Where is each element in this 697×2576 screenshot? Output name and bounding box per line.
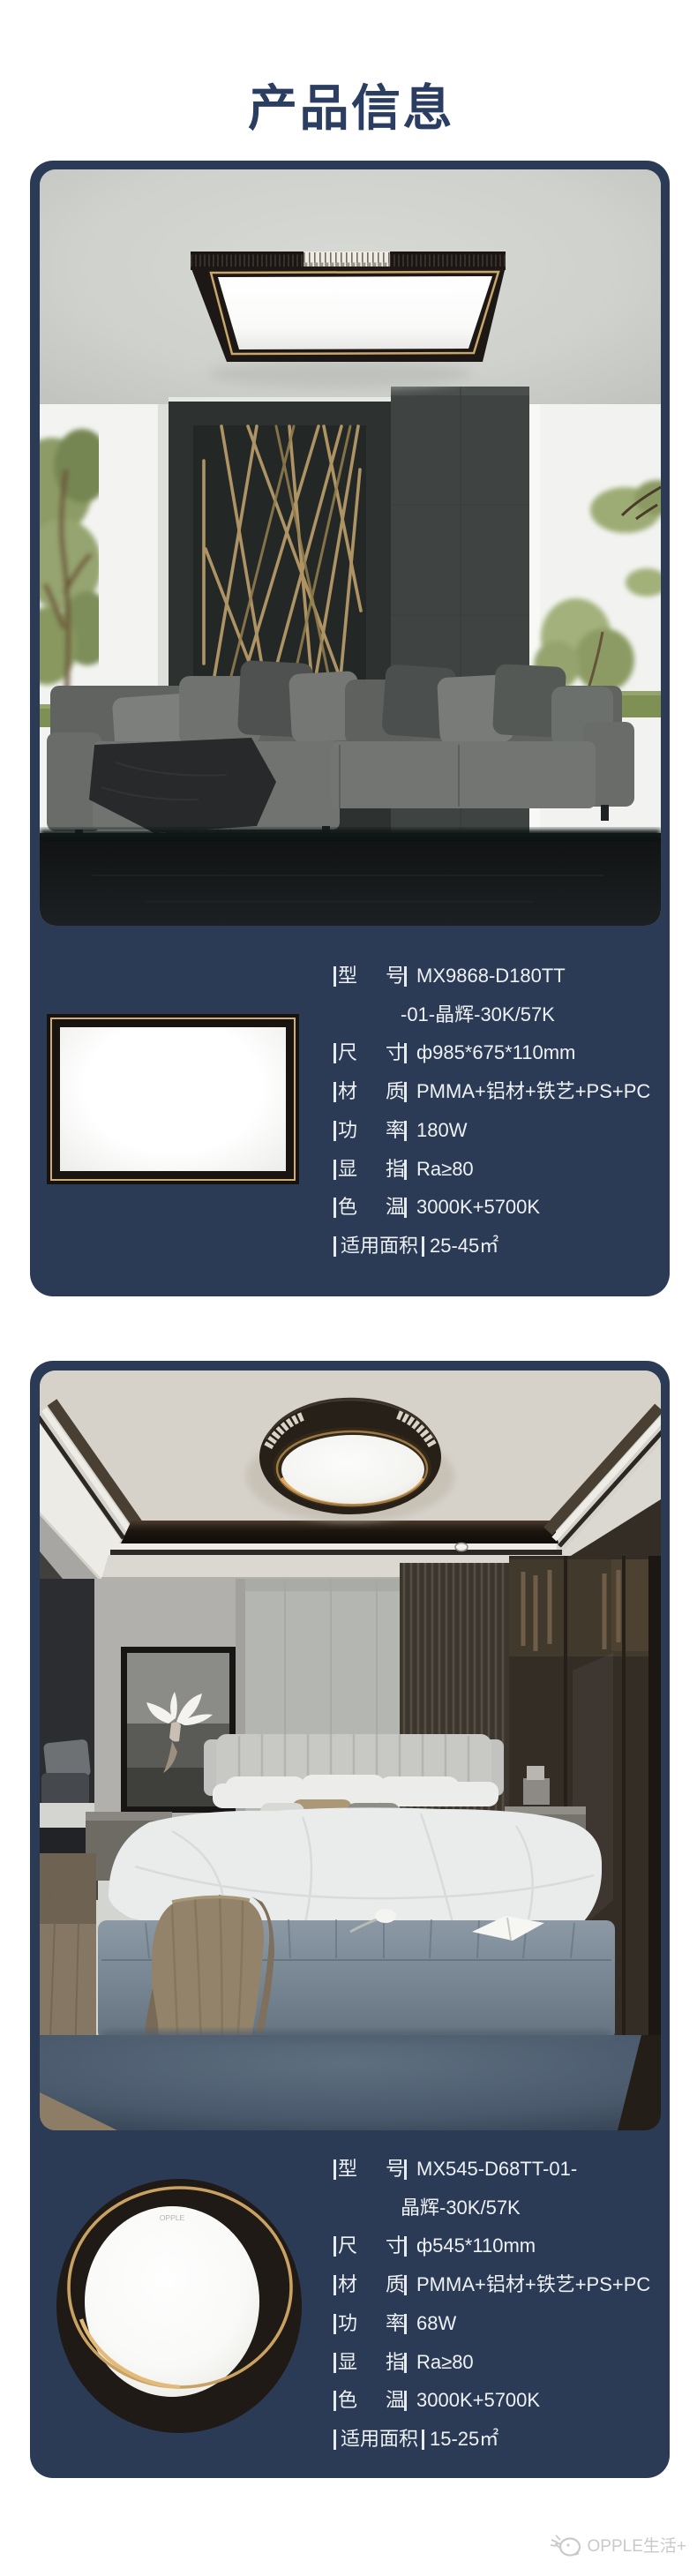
- svg-text:OPPLE: OPPLE: [160, 2213, 185, 2222]
